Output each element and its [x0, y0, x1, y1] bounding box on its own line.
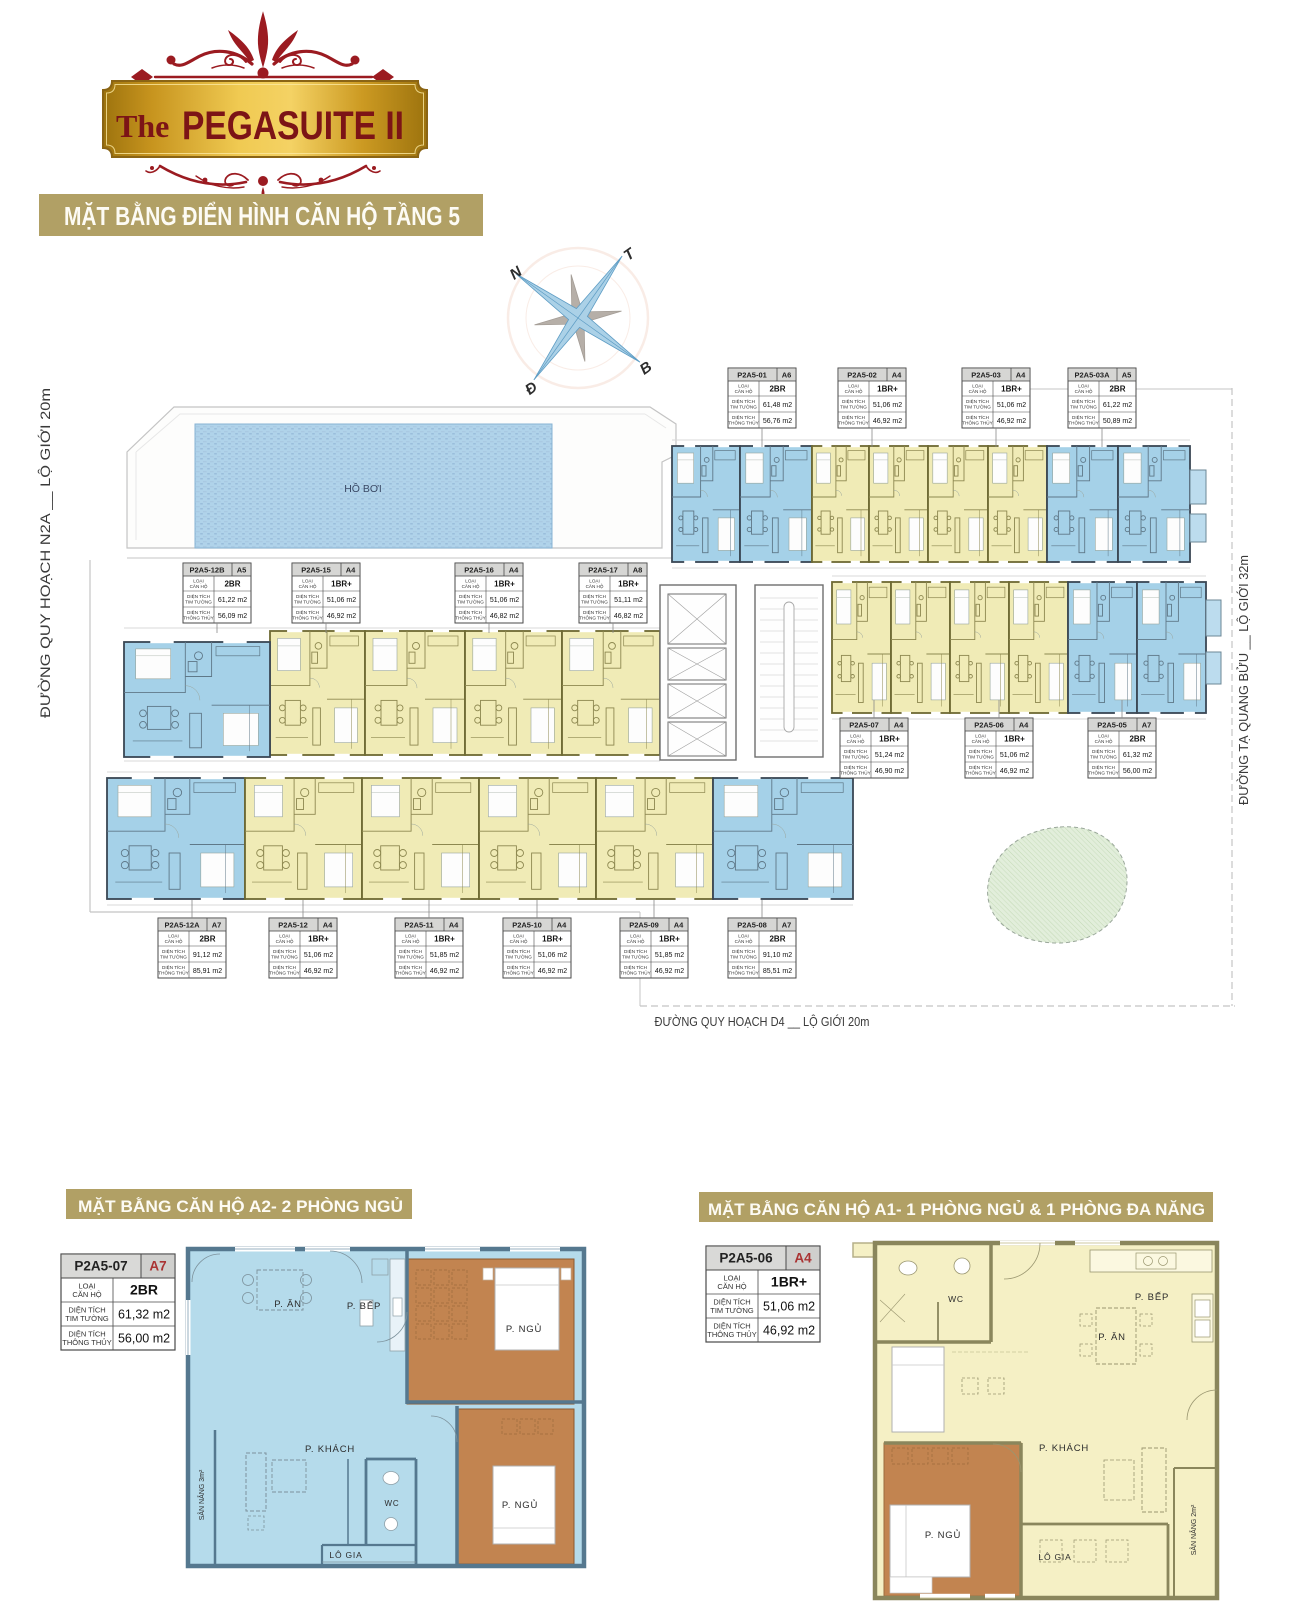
- svg-text:CĂN HỘ: CĂN HỘ: [586, 583, 604, 589]
- svg-text:TIM TƯỜNG: TIM TƯỜNG: [185, 598, 212, 604]
- svg-text:85,91 m2: 85,91 m2: [193, 968, 222, 975]
- svg-text:P. NGỦ: P. NGỦ: [502, 1499, 538, 1511]
- svg-text:TIM TƯỜNG: TIM TƯỜNG: [65, 1314, 109, 1323]
- svg-text:LOẠI: LOẠI: [279, 934, 289, 939]
- svg-text:51,06 m2: 51,06 m2: [1000, 752, 1029, 759]
- svg-text:THÔNG THỦY: THÔNG THỦY: [838, 419, 868, 425]
- svg-text:THÔNG THỦY: THÔNG THỦY: [728, 419, 758, 425]
- svg-text:THÔNG THỦY: THÔNG THỦY: [1088, 769, 1118, 775]
- svg-text:SÂN NẮNG 3m²: SÂN NẮNG 3m²: [197, 1469, 206, 1520]
- svg-text:DIỆN TÍCH: DIỆN TÍCH: [732, 413, 755, 420]
- svg-text:TIM TƯỜNG: TIM TƯỜNG: [622, 953, 649, 959]
- svg-text:THÔNG THỦY: THÔNG THỦY: [62, 1338, 111, 1347]
- svg-text:91,10 m2: 91,10 m2: [763, 952, 792, 959]
- svg-text:MẶT BẰNG CĂN HỘ A2- 2 PHÒNG NG: MẶT BẰNG CĂN HỘ A2- 2 PHÒNG NGỦ: [78, 1197, 403, 1216]
- svg-text:46,90 m2: 46,90 m2: [875, 768, 904, 775]
- svg-text:56,00 m2: 56,00 m2: [1123, 768, 1152, 775]
- svg-text:P. BẾP: P. BẾP: [1135, 1292, 1169, 1303]
- svg-text:TIM TƯỜNG: TIM TƯỜNG: [710, 1306, 754, 1315]
- svg-text:TIM TƯỜNG: TIM TƯỜNG: [505, 953, 532, 959]
- svg-text:P. KHÁCH: P. KHÁCH: [1039, 1443, 1089, 1454]
- svg-text:The: The: [116, 108, 169, 144]
- svg-text:LOẠI: LOẠI: [465, 579, 475, 584]
- svg-text:CĂN HỘ: CĂN HỘ: [969, 388, 987, 394]
- svg-text:DIỆN TÍCH: DIỆN TÍCH: [507, 963, 530, 970]
- svg-text:51,06 m2: 51,06 m2: [538, 952, 567, 959]
- svg-text:THÔNG THỦY: THÔNG THỦY: [158, 969, 188, 975]
- svg-text:85,51 m2: 85,51 m2: [763, 968, 792, 975]
- svg-text:P2A5-06: P2A5-06: [719, 1251, 773, 1266]
- svg-text:DIỆN TÍCH: DIỆN TÍCH: [966, 413, 989, 420]
- svg-text:WC: WC: [948, 1294, 964, 1304]
- svg-text:A7: A7: [1142, 721, 1152, 730]
- svg-text:TIM TƯỜNG: TIM TƯỜNG: [457, 598, 484, 604]
- svg-text:DIỆN TÍCH: DIỆN TÍCH: [1072, 413, 1095, 420]
- svg-text:2BR: 2BR: [199, 935, 215, 944]
- svg-text:P2A5-08: P2A5-08: [737, 921, 767, 930]
- svg-text:DIỆN TÍCH: DIỆN TÍCH: [1072, 397, 1095, 404]
- svg-text:1BR+: 1BR+: [1004, 735, 1025, 744]
- svg-text:P2A5-05: P2A5-05: [1097, 721, 1127, 730]
- svg-text:51,06 m2: 51,06 m2: [763, 1300, 815, 1314]
- svg-text:DIỆN TÍCH: DIỆN TÍCH: [459, 608, 482, 615]
- svg-text:WC: WC: [385, 1499, 400, 1508]
- svg-text:CĂN HỘ: CĂN HỘ: [165, 938, 183, 944]
- svg-text:THÔNG THỦY: THÔNG THỦY: [503, 969, 533, 975]
- svg-text:ĐƯỜNG TẠ QUANG BỬU __ LỘ GIỚI: ĐƯỜNG TẠ QUANG BỬU __ LỘ GIỚI 32m: [1236, 555, 1251, 805]
- svg-text:TIM TƯỜNG: TIM TƯỜNG: [160, 953, 187, 959]
- svg-text:46,82 m2: 46,82 m2: [490, 613, 519, 620]
- svg-text:A4: A4: [1016, 371, 1026, 380]
- svg-text:DIỆN TÍCH: DIỆN TÍCH: [507, 947, 530, 954]
- svg-text:CĂN HỘ: CĂN HỘ: [627, 938, 645, 944]
- svg-text:LÔ GIA: LÔ GIA: [1038, 1552, 1071, 1562]
- svg-text:46,92 m2: 46,92 m2: [997, 418, 1026, 425]
- svg-text:LÔ GIA: LÔ GIA: [329, 1550, 362, 1560]
- svg-text:P2A5-16: P2A5-16: [464, 566, 494, 575]
- svg-text:1BR+: 1BR+: [659, 935, 680, 944]
- svg-text:A4: A4: [892, 371, 902, 380]
- svg-text:TIM TƯỜNG: TIM TƯỜNG: [581, 598, 608, 604]
- svg-text:THÔNG THỦY: THÔNG THỦY: [183, 614, 213, 620]
- svg-text:P2A5-15: P2A5-15: [301, 566, 331, 575]
- svg-text:P2A5-12: P2A5-12: [278, 921, 308, 930]
- svg-text:2BR: 2BR: [1129, 735, 1145, 744]
- svg-text:2BR: 2BR: [224, 580, 240, 589]
- svg-text:CĂN HỘ: CĂN HỘ: [845, 388, 863, 394]
- svg-text:P. KHÁCH: P. KHÁCH: [305, 1444, 355, 1455]
- svg-text:56,09 m2: 56,09 m2: [218, 613, 247, 620]
- svg-text:LOẠI: LOẠI: [405, 934, 415, 939]
- svg-text:P2A5-07: P2A5-07: [74, 1259, 127, 1274]
- svg-text:P. ĂN: P. ĂN: [274, 1299, 302, 1310]
- svg-text:DIỆN TÍCH: DIỆN TÍCH: [459, 592, 482, 599]
- svg-text:46,92 m2: 46,92 m2: [873, 418, 902, 425]
- svg-text:A4: A4: [894, 721, 904, 730]
- svg-text:A4: A4: [509, 566, 519, 575]
- svg-text:DIỆN TÍCH: DIỆN TÍCH: [1092, 747, 1115, 754]
- svg-text:1BR+: 1BR+: [877, 385, 898, 394]
- svg-text:CĂN HỘ: CĂN HỘ: [735, 938, 753, 944]
- svg-text:TIM TƯỜNG: TIM TƯỜNG: [294, 598, 321, 604]
- svg-text:P2A5-03A: P2A5-03A: [1074, 371, 1110, 380]
- svg-text:DIỆN TÍCH: DIỆN TÍCH: [273, 947, 296, 954]
- svg-text:TIM TƯỜNG: TIM TƯỜNG: [730, 953, 757, 959]
- svg-text:DIỆN TÍCH: DIỆN TÍCH: [296, 608, 319, 615]
- svg-text:ĐƯỜNG QUY HOẠCH D4 __ LỘ GIỚI: ĐƯỜNG QUY HOẠCH D4 __ LỘ GIỚI 20m: [655, 1014, 870, 1029]
- svg-text:DIỆN TÍCH: DIỆN TÍCH: [969, 763, 992, 770]
- svg-text:LOẠI: LOẠI: [302, 579, 312, 584]
- svg-text:THÔNG THỦY: THÔNG THỦY: [395, 969, 425, 975]
- svg-text:LOẠI: LOẠI: [738, 384, 748, 389]
- svg-text:DIỆN TÍCH: DIỆN TÍCH: [732, 947, 755, 954]
- svg-text:MẶT BẰNG CĂN HỘ A1- 1 PHÒNG NG: MẶT BẰNG CĂN HỘ A1- 1 PHÒNG NGỦ & 1 PHÒN…: [708, 1200, 1205, 1219]
- svg-text:SÂN NẮNG 2m²: SÂN NẮNG 2m²: [1189, 1504, 1198, 1555]
- svg-text:P2A5-11: P2A5-11: [404, 921, 433, 930]
- svg-text:CĂN HỘ: CĂN HỘ: [847, 738, 865, 744]
- svg-text:DIỆN TÍCH: DIỆN TÍCH: [583, 608, 606, 615]
- svg-text:A5: A5: [237, 566, 247, 575]
- svg-text:CĂN HỘ: CĂN HỘ: [299, 583, 317, 589]
- svg-text:MẶT BẰNG ĐIỂN HÌNH CĂN HỘ TẦNG: MẶT BẰNG ĐIỂN HÌNH CĂN HỘ TẦNG 5: [64, 201, 460, 231]
- svg-text:2BR: 2BR: [1109, 385, 1125, 394]
- svg-text:TIM TƯỜNG: TIM TƯỜNG: [271, 953, 298, 959]
- svg-text:DIỆN TÍCH: DIỆN TÍCH: [732, 397, 755, 404]
- svg-text:THÔNG THỦY: THÔNG THỦY: [728, 969, 758, 975]
- svg-text:LOẠI: LOẠI: [1098, 734, 1108, 739]
- svg-text:46,92 m2: 46,92 m2: [538, 968, 567, 975]
- svg-text:DIỆN TÍCH: DIỆN TÍCH: [399, 963, 422, 970]
- svg-text:LOẠI: LOẠI: [975, 734, 985, 739]
- svg-text:P2A5-09: P2A5-09: [629, 921, 659, 930]
- svg-text:51,24 m2: 51,24 m2: [875, 752, 904, 759]
- svg-text:2BR: 2BR: [769, 935, 785, 944]
- svg-text:P. NGỦ: P. NGỦ: [506, 1323, 542, 1335]
- svg-text:THÔNG THỦY: THÔNG THỦY: [620, 969, 650, 975]
- svg-text:LOẠI: LOẠI: [589, 579, 599, 584]
- svg-text:CĂN HỘ: CĂN HỘ: [510, 938, 528, 944]
- svg-text:A7: A7: [149, 1259, 166, 1274]
- svg-text:DIỆN TÍCH: DIỆN TÍCH: [844, 763, 867, 770]
- svg-text:A4: A4: [449, 921, 459, 930]
- svg-text:46,82 m2: 46,82 m2: [614, 613, 643, 620]
- svg-text:A5: A5: [1122, 371, 1132, 380]
- svg-text:ĐƯỜNG QUY HOẠCH N2A __ LỘ GIỚI: ĐƯỜNG QUY HOẠCH N2A __ LỘ GIỚI 20m: [38, 388, 53, 718]
- svg-text:THÔNG THỦY: THÔNG THỦY: [840, 769, 870, 775]
- svg-text:51,06 m2: 51,06 m2: [490, 597, 519, 604]
- svg-text:2BR: 2BR: [769, 385, 785, 394]
- svg-text:P. NGỦ: P. NGỦ: [925, 1529, 961, 1541]
- svg-text:P2A5-17: P2A5-17: [588, 566, 618, 575]
- svg-text:CĂN HỘ: CĂN HỘ: [735, 388, 753, 394]
- svg-text:46,92 m2: 46,92 m2: [430, 968, 459, 975]
- svg-text:P2A5-12B: P2A5-12B: [189, 566, 225, 575]
- svg-text:LOẠI: LOẠI: [630, 934, 640, 939]
- svg-text:PEGASUITE II: PEGASUITE II: [182, 104, 404, 148]
- svg-text:46,92 m2: 46,92 m2: [304, 968, 333, 975]
- svg-text:HỒ BƠI: HỒ BƠI: [344, 482, 382, 495]
- svg-text:1BR+: 1BR+: [308, 935, 329, 944]
- svg-text:CĂN HỘ: CĂN HỘ: [972, 738, 990, 744]
- svg-text:TIM TƯỜNG: TIM TƯỜNG: [1070, 403, 1097, 409]
- svg-text:DIỆN TÍCH: DIỆN TÍCH: [966, 397, 989, 404]
- svg-text:LOẠI: LOẠI: [193, 579, 203, 584]
- svg-text:51,06 m2: 51,06 m2: [873, 402, 902, 409]
- svg-text:DIỆN TÍCH: DIỆN TÍCH: [732, 963, 755, 970]
- svg-text:2BR: 2BR: [130, 1282, 158, 1298]
- svg-text:CĂN HỘ: CĂN HỘ: [1095, 738, 1113, 744]
- svg-text:THÔNG THỦY: THÔNG THỦY: [707, 1330, 756, 1339]
- svg-text:DIỆN TÍCH: DIỆN TÍCH: [624, 947, 647, 954]
- svg-text:THÔNG THỦY: THÔNG THỦY: [455, 614, 485, 620]
- svg-text:TIM TƯỜNG: TIM TƯỜNG: [840, 403, 867, 409]
- svg-text:A4: A4: [323, 921, 333, 930]
- svg-text:DIỆN TÍCH: DIỆN TÍCH: [842, 397, 865, 404]
- svg-text:1BR+: 1BR+: [1001, 385, 1022, 394]
- svg-text:46,92 m2: 46,92 m2: [1000, 768, 1029, 775]
- svg-text:TIM TƯỜNG: TIM TƯỜNG: [1090, 753, 1117, 759]
- svg-text:P2A5-10: P2A5-10: [512, 921, 542, 930]
- svg-text:TIM TƯỜNG: TIM TƯỜNG: [842, 753, 869, 759]
- svg-text:TIM TƯỜNG: TIM TƯỜNG: [964, 403, 991, 409]
- svg-text:61,22 m2: 61,22 m2: [1103, 402, 1132, 409]
- svg-text:TIM TƯỜNG: TIM TƯỜNG: [730, 403, 757, 409]
- svg-text:1BR+: 1BR+: [331, 580, 352, 589]
- svg-text:THÔNG THỦY: THÔNG THỦY: [1068, 419, 1098, 425]
- svg-text:51,06 m2: 51,06 m2: [304, 952, 333, 959]
- svg-text:CĂN HỘ: CĂN HỘ: [462, 583, 480, 589]
- svg-text:1BR+: 1BR+: [434, 935, 455, 944]
- svg-text:51,85 m2: 51,85 m2: [430, 952, 459, 959]
- svg-text:51,85 m2: 51,85 m2: [655, 952, 684, 959]
- svg-text:DIỆN TÍCH: DIỆN TÍCH: [273, 963, 296, 970]
- svg-text:CĂN HỘ: CĂN HỘ: [72, 1290, 101, 1299]
- svg-text:LOẠI: LOẠI: [738, 934, 748, 939]
- svg-text:DIỆN TÍCH: DIỆN TÍCH: [842, 413, 865, 420]
- svg-text:DIỆN TÍCH: DIỆN TÍCH: [296, 592, 319, 599]
- svg-text:A6: A6: [782, 371, 792, 380]
- svg-text:LOẠI: LOẠI: [1078, 384, 1088, 389]
- svg-text:CĂN HỘ: CĂN HỘ: [717, 1282, 746, 1291]
- svg-text:61,32 m2: 61,32 m2: [1123, 752, 1152, 759]
- svg-text:56,00 m2: 56,00 m2: [118, 1332, 170, 1346]
- svg-text:1BR+: 1BR+: [771, 1274, 807, 1290]
- svg-text:50,89 m2: 50,89 m2: [1103, 418, 1132, 425]
- svg-text:46,92 m2: 46,92 m2: [327, 613, 356, 620]
- svg-text:THÔNG THỦY: THÔNG THỦY: [962, 419, 992, 425]
- svg-text:DIỆN TÍCH: DIỆN TÍCH: [969, 747, 992, 754]
- svg-text:1BR+: 1BR+: [542, 935, 563, 944]
- svg-text:P2A5-02: P2A5-02: [847, 371, 877, 380]
- svg-text:DIỆN TÍCH: DIỆN TÍCH: [187, 608, 210, 615]
- svg-text:TIM TƯỜNG: TIM TƯỜNG: [967, 753, 994, 759]
- svg-text:P2A5-12A: P2A5-12A: [164, 921, 200, 930]
- svg-text:56,76 m2: 56,76 m2: [763, 418, 792, 425]
- svg-text:CĂN HỘ: CĂN HỘ: [276, 938, 294, 944]
- svg-text:61,32 m2: 61,32 m2: [118, 1308, 170, 1322]
- svg-text:LOẠI: LOẠI: [850, 734, 860, 739]
- svg-text:A8: A8: [633, 566, 643, 575]
- svg-text:TIM TƯỜNG: TIM TƯỜNG: [397, 953, 424, 959]
- svg-text:51,06 m2: 51,06 m2: [997, 402, 1026, 409]
- svg-text:DIỆN TÍCH: DIỆN TÍCH: [187, 592, 210, 599]
- svg-text:DIỆN TÍCH: DIỆN TÍCH: [583, 592, 606, 599]
- svg-text:91,12 m2: 91,12 m2: [193, 952, 222, 959]
- svg-text:LOẠI: LOẠI: [972, 384, 982, 389]
- svg-text:LOẠI: LOẠI: [168, 934, 178, 939]
- svg-text:THÔNG THỦY: THÔNG THỦY: [292, 614, 322, 620]
- svg-text:P. ĂN: P. ĂN: [1098, 1332, 1126, 1343]
- svg-text:P2A5-06: P2A5-06: [974, 721, 1004, 730]
- svg-text:A4: A4: [557, 921, 567, 930]
- svg-text:CĂN HỘ: CĂN HỘ: [1075, 388, 1093, 394]
- svg-text:DIỆN TÍCH: DIỆN TÍCH: [399, 947, 422, 954]
- svg-text:CĂN HỘ: CĂN HỘ: [402, 938, 420, 944]
- svg-text:A7: A7: [782, 921, 792, 930]
- svg-text:51,06 m2: 51,06 m2: [327, 597, 356, 604]
- svg-text:THÔNG THỦY: THÔNG THỦY: [579, 614, 609, 620]
- svg-text:LOẠI: LOẠI: [848, 384, 858, 389]
- svg-text:CĂN HỘ: CĂN HỘ: [190, 583, 208, 589]
- svg-text:A4: A4: [674, 921, 684, 930]
- svg-text:P2A5-03: P2A5-03: [971, 371, 1001, 380]
- svg-text:51,11 m2: 51,11 m2: [614, 597, 643, 604]
- svg-text:DIỆN TÍCH: DIỆN TÍCH: [1092, 763, 1115, 770]
- svg-text:DIỆN TÍCH: DIỆN TÍCH: [162, 963, 185, 970]
- svg-text:A4: A4: [1019, 721, 1029, 730]
- svg-text:61,48 m2: 61,48 m2: [763, 402, 792, 409]
- svg-text:THÔNG THỦY: THÔNG THỦY: [965, 769, 995, 775]
- svg-text:1BR+: 1BR+: [494, 580, 515, 589]
- svg-text:THÔNG THỦY: THÔNG THỦY: [269, 969, 299, 975]
- svg-text:46,92 m2: 46,92 m2: [655, 968, 684, 975]
- svg-text:46,92 m2: 46,92 m2: [763, 1324, 815, 1338]
- svg-text:A4: A4: [346, 566, 356, 575]
- svg-text:A4: A4: [794, 1251, 812, 1266]
- svg-text:DIỆN TÍCH: DIỆN TÍCH: [624, 963, 647, 970]
- svg-text:DIỆN TÍCH: DIỆN TÍCH: [844, 747, 867, 754]
- svg-text:DIỆN TÍCH: DIỆN TÍCH: [162, 947, 185, 954]
- svg-text:1BR+: 1BR+: [879, 735, 900, 744]
- svg-text:61,22 m2: 61,22 m2: [218, 597, 247, 604]
- svg-text:P2A5-01: P2A5-01: [737, 371, 767, 380]
- svg-text:LOẠI: LOẠI: [513, 934, 523, 939]
- svg-text:P. BẾP: P. BẾP: [347, 1301, 381, 1312]
- svg-text:1BR+: 1BR+: [618, 580, 639, 589]
- svg-text:P2A5-07: P2A5-07: [849, 721, 879, 730]
- svg-text:A7: A7: [212, 921, 222, 930]
